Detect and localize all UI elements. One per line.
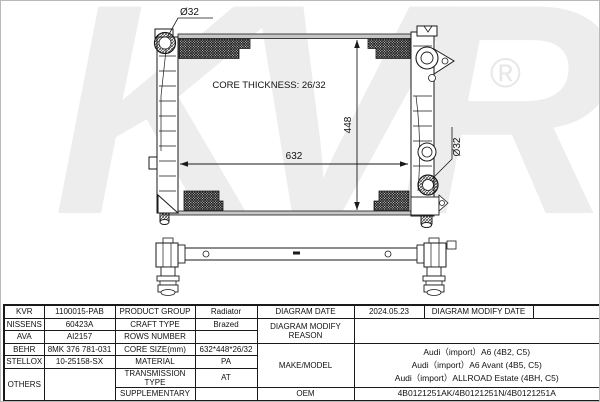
brand-code: 1100015-PAB [44,305,115,318]
brand-name: AVA [4,330,44,343]
diagram-date-label: DIAGRAM DATE [257,305,354,318]
brand-name: NISSENS [4,318,44,330]
spec-label: CRAFT TYPE [115,318,195,330]
oem-value: 4B0121251AK/4B0121251N/4B0121251A [354,387,600,401]
make-model-line: Audi（import）ALLROAD Estate (4BH, C5) [356,372,599,385]
core-bottom-header [162,211,411,215]
core-top-header [178,34,411,39]
spec-value: 632*448*26/32 [195,343,257,355]
spec-value [195,330,257,343]
diagram-modify-date-label: DIAGRAM MODIFY DATE [424,305,533,318]
diagram-modify-date-value [533,305,600,318]
make-model-line: Audi（import）A6 Avant (4B5, C5) [356,359,599,372]
brand-name: STELLOX [4,355,44,368]
brand-code: AI2157 [44,330,115,343]
spec-value: Brazed [195,318,257,330]
core-thickness-label: CORE THICKNESS: 26/32 [212,80,325,91]
side-hole-right [385,251,391,257]
radiator-diagram: 632 448 CORE THICKNESS: 26/32 Ø32 Ø32 [1,1,600,301]
spec-label: SUPPLEMENTARY [115,387,195,401]
spec-label: MATERIAL [115,355,195,368]
spec-label: CORE SIZE(mm) [115,343,195,355]
brand-name: KVR [4,305,44,318]
spec-label: TRANSMISSION TYPE [115,368,195,387]
dimension-height: 448 [343,40,360,210]
left-mount-tab [149,157,157,169]
spec-table: KVR 1100015-PAB PRODUCT GROUP Radiator D… [3,304,600,402]
spec-value [195,387,257,401]
dimension-width: 632 [180,151,408,167]
fin-block-bottom-right [374,191,409,211]
left-tank [149,29,178,225]
make-model-label: MAKE/MODEL [257,343,354,387]
side-fitting-left [156,238,185,296]
spec-value: AT [195,368,257,387]
spec-label: PRODUCT GROUP [115,305,195,318]
callout-port-top: Ø32 [168,7,213,36]
make-model-value: Audi（import）A6 (4B2, C5) Audi（import）A6 … [354,343,600,387]
spec-label: ROWS NUMBER [115,330,195,343]
fin-block-bottom-left [184,191,223,211]
dim-height-label: 448 [343,116,354,133]
diagram-date-value: 2024.05.23 [354,305,424,318]
side-fitting-right [417,238,456,296]
port-top-label: Ø32 [180,7,199,18]
brand-code: 8MK 376 781-031 [44,343,115,355]
page: KVR ® [0,0,600,402]
dim-width-label: 632 [286,151,303,162]
front-view: 632 448 CORE THICKNESS: 26/32 Ø32 Ø32 [149,7,463,228]
side-view [156,238,456,296]
fin-block-top-right [368,39,410,59]
make-model-line: Audi（import）A6 (4B2, C5) [356,346,599,359]
brand-code: 10-25158-SX [44,355,115,368]
brand-name: OTHERS [4,368,44,401]
spec-value: Radiator [195,305,257,318]
oem-label: OEM [257,387,354,401]
right-tank [411,26,454,228]
port-right-label: Ø32 [452,137,463,156]
fin-block-top-left [179,39,250,59]
diagram-modify-reason-value [354,318,600,343]
side-hole-left [203,251,209,257]
side-center-notch [293,252,300,255]
spec-value: PA [195,355,257,368]
brand-name: BEHR [4,343,44,355]
brand-code [44,368,115,401]
diagram-modify-reason-label: DIAGRAM MODIFY REASON [257,318,354,343]
brand-code: 60423A [44,318,115,330]
